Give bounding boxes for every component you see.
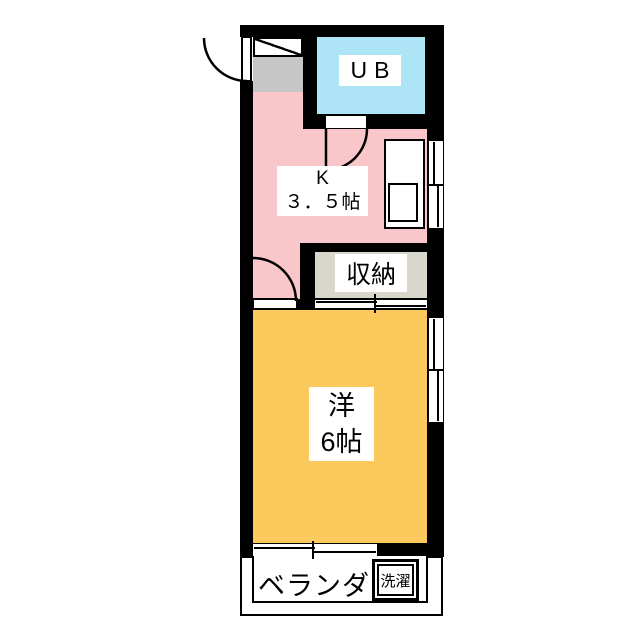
shoe-cabinet <box>253 37 303 57</box>
kitchen-floor <box>253 92 303 129</box>
kitchen-sink <box>388 183 418 222</box>
veranda-sliding-window <box>253 544 377 556</box>
western-room-size: 6帖 <box>320 424 362 460</box>
floorplan-canvas: 洗濯 ベランダ UB K ３．５帖 収納 洋 6帖 <box>0 0 640 640</box>
storage-label: 収納 <box>335 254 407 292</box>
kitchen-label: K ３．５帖 <box>277 166 368 216</box>
entrance-genkan-floor <box>253 57 303 92</box>
washing-machine-label: 洗濯 <box>377 564 414 596</box>
western-room-label: 洋 6帖 <box>309 387 374 461</box>
kitchen-room-door-opening <box>252 298 298 310</box>
kitchen-window <box>429 141 443 228</box>
western-room-name: 洋 <box>328 388 355 424</box>
western-room-window <box>429 318 443 422</box>
unit-bath-label: UB <box>339 55 401 86</box>
veranda-label: ベランダ <box>258 566 370 600</box>
unit-bath-door-opening <box>324 114 368 130</box>
kitchen-size: ３．５帖 <box>284 191 360 215</box>
entrance-door-leaf <box>241 36 252 82</box>
storage-sliding-door <box>315 298 427 310</box>
kitchen-name: K <box>316 167 329 191</box>
kitchen-floor <box>253 243 300 299</box>
washing-machine-box: 洗濯 <box>372 559 419 601</box>
